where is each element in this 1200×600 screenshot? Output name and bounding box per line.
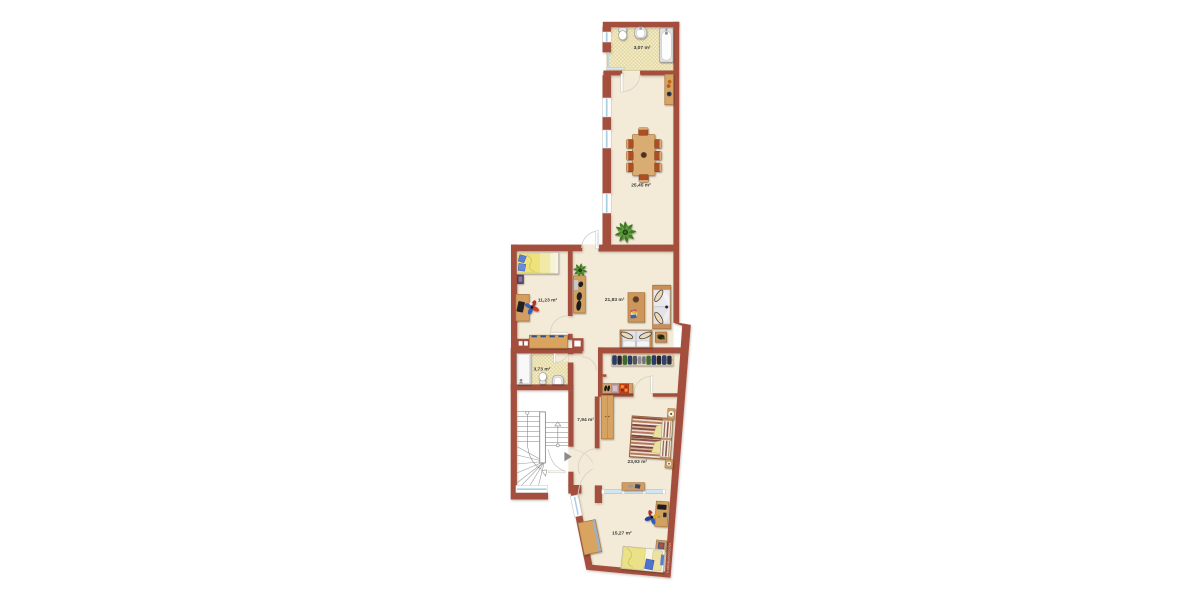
svg-text:3,07 m²: 3,07 m²	[634, 45, 651, 51]
svg-text:15,27 m²: 15,27 m²	[612, 530, 632, 536]
svg-text:3,73 m²: 3,73 m²	[533, 366, 550, 372]
svg-text:7,94 m²: 7,94 m²	[577, 417, 594, 423]
svg-text:25,45 m²: 25,45 m²	[631, 182, 651, 188]
svg-text:23,93 m²: 23,93 m²	[628, 459, 648, 465]
svg-text:11,23 m²: 11,23 m²	[538, 297, 558, 303]
svg-text:21,83 m²: 21,83 m²	[605, 297, 625, 303]
